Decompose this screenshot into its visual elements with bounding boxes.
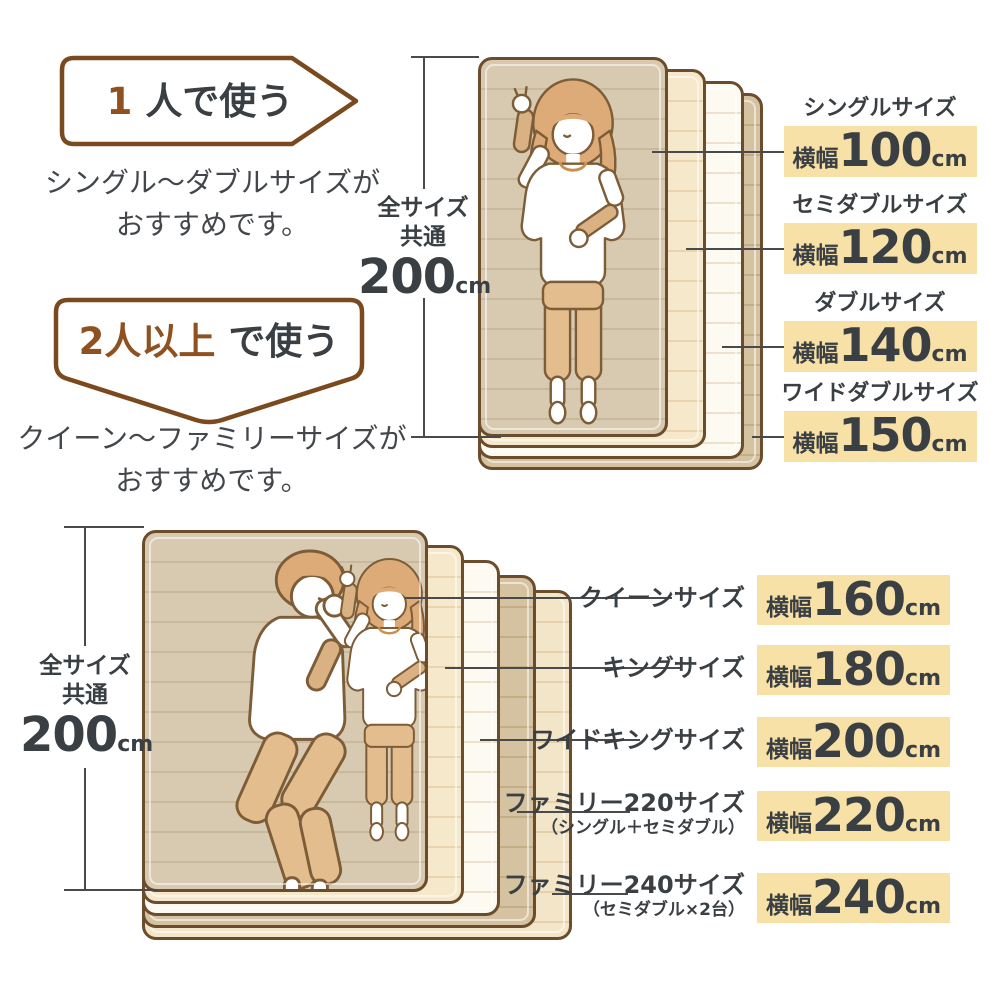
bottom-length-dimension: 全サイズ 共通 200cm bbox=[20, 652, 150, 760]
banner-multi-rest: で使う bbox=[228, 320, 339, 363]
top-length-dimension: 全サイズ 共通 200cm bbox=[358, 194, 488, 302]
label-king: キングサイズ 横幅180cm bbox=[510, 638, 950, 698]
svg-text:1 人で使う: 1 人で使う bbox=[107, 80, 294, 123]
mattress-single bbox=[478, 57, 668, 437]
size-subtext: （セミダブル×2台） bbox=[504, 900, 745, 920]
label-family-220: ファミリー220サイズ （シングル＋セミダブル） 横幅220cm bbox=[510, 782, 950, 846]
size-name-block: ファミリー240サイズ （セミダブル×2台） bbox=[504, 871, 745, 920]
dim-value: 200 bbox=[358, 249, 455, 305]
size-name: キングサイズ bbox=[602, 654, 745, 683]
dim-line-lower bbox=[423, 298, 425, 437]
size-value-badge: 横幅160cm bbox=[757, 575, 950, 625]
dim-line1: 全サイズ bbox=[358, 194, 488, 223]
size-value-badge: 横幅180cm bbox=[757, 645, 950, 695]
single-desc-line1: シングル〜ダブルサイズが bbox=[15, 162, 410, 204]
mattress-queen bbox=[142, 530, 428, 892]
sleeping-couple-illustration bbox=[145, 533, 425, 889]
dim-line2: 共通 bbox=[358, 223, 488, 252]
single-use-description: シングル〜ダブルサイズが おすすめです。 bbox=[15, 162, 410, 246]
dim-unit: cm bbox=[455, 274, 491, 299]
label-semi-double: セミダブルサイズ 横幅120cm bbox=[770, 193, 990, 274]
label-double: ダブルサイズ 横幅140cm bbox=[770, 291, 990, 372]
dim-line-upper bbox=[423, 57, 425, 189]
multi-desc-line2: おすすめです。 bbox=[12, 460, 412, 502]
label-wide-double: ワイドダブルサイズ 横幅150cm bbox=[770, 381, 990, 462]
sleeping-woman-illustration bbox=[481, 60, 665, 434]
dim-line-lower bbox=[84, 768, 86, 890]
size-name: ワイドダブルサイズ bbox=[770, 381, 990, 407]
dim-value: 200 bbox=[20, 707, 117, 763]
dim-cap-top bbox=[411, 56, 479, 58]
size-value-badge: 横幅140cm bbox=[784, 321, 977, 371]
svg-text:2人以上 で使う: 2人以上 で使う bbox=[79, 320, 340, 363]
size-name: ファミリー240サイズ bbox=[504, 871, 745, 900]
dim-unit: cm bbox=[117, 732, 153, 757]
size-value-badge: 横幅100cm bbox=[784, 126, 977, 176]
multi-desc-line1: クイーン〜ファミリーサイズが bbox=[12, 418, 412, 460]
size-name: クイーンサイズ bbox=[579, 584, 745, 613]
single-desc-line2: おすすめです。 bbox=[15, 204, 410, 246]
banner-multi-use: 2人以上 で使う bbox=[52, 296, 366, 430]
label-queen: クイーンサイズ 横幅160cm bbox=[510, 568, 950, 628]
size-name: セミダブルサイズ bbox=[770, 193, 990, 219]
dim-line-upper bbox=[84, 527, 86, 646]
size-value-badge: 横幅240cm bbox=[757, 873, 950, 923]
size-name: ファミリー220サイズ bbox=[504, 789, 745, 818]
dim-cap-top bbox=[64, 526, 144, 528]
banner-single-use: 1 人で使う bbox=[58, 54, 364, 148]
size-value-badge: 横幅200cm bbox=[757, 717, 950, 767]
dim-line2: 共通 bbox=[20, 681, 150, 710]
banner-single-accent: 1 bbox=[107, 80, 133, 123]
size-value-badge: 横幅220cm bbox=[757, 791, 950, 841]
dim-cap-bottom bbox=[64, 889, 158, 891]
size-name-block: ファミリー220サイズ （シングル＋セミダブル） bbox=[504, 789, 745, 838]
size-value-badge: 横幅120cm bbox=[784, 223, 977, 273]
size-name: シングルサイズ bbox=[770, 96, 990, 122]
size-name: ワイドキングサイズ bbox=[530, 726, 745, 755]
label-single: シングルサイズ 横幅100cm bbox=[770, 96, 990, 177]
banner-multi-accent: 2人以上 bbox=[79, 320, 216, 363]
banner-single-rest: 人で使う bbox=[145, 80, 293, 123]
size-value-badge: 横幅150cm bbox=[784, 411, 977, 461]
dim-line1: 全サイズ bbox=[20, 652, 150, 681]
label-family-240: ファミリー240サイズ （セミダブル×2台） 横幅240cm bbox=[510, 864, 950, 928]
infographic-root: 1 人で使う シングル〜ダブルサイズが おすすめです。 2人以上 で使う クイー… bbox=[0, 0, 1000, 1000]
multi-use-description: クイーン〜ファミリーサイズが おすすめです。 bbox=[12, 418, 412, 502]
size-name: ダブルサイズ bbox=[770, 291, 990, 317]
label-wide-king: ワイドキングサイズ 横幅200cm bbox=[510, 710, 950, 770]
size-subtext: （シングル＋セミダブル） bbox=[504, 818, 745, 838]
